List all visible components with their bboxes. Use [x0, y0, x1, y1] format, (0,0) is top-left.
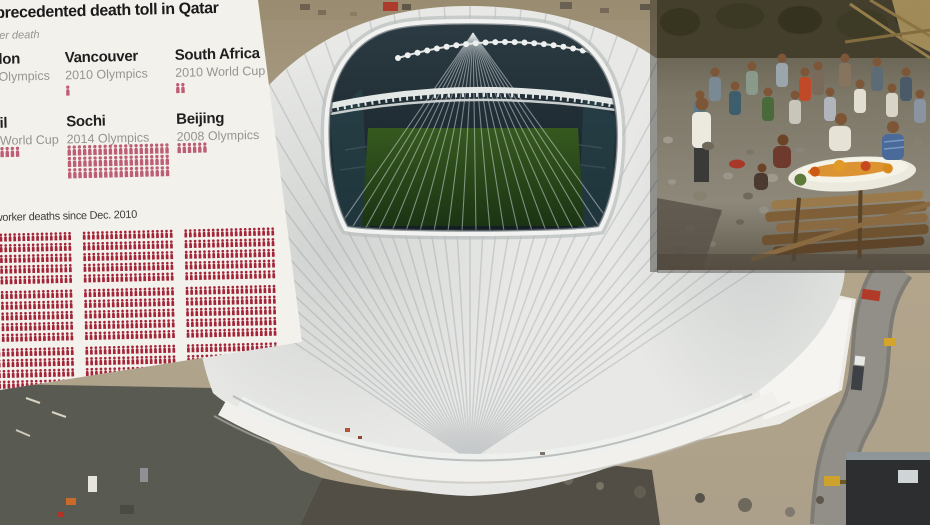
football-pitch — [362, 128, 584, 226]
stadium-bowl-opening — [330, 25, 617, 232]
funeral-photo-inset — [657, 0, 930, 270]
yellow-machine — [884, 338, 896, 346]
dark-building — [846, 452, 930, 525]
composite-image: Unprecedented death toll in Qatar = 1 wo… — [0, 0, 930, 525]
orange-digger — [66, 498, 76, 505]
red-container — [383, 2, 398, 11]
death-toll-infographic: Unprecedented death toll in Qatar = 1 wo… — [0, 0, 312, 402]
red-cloth — [729, 160, 745, 169]
white-truck — [88, 476, 97, 492]
inset-shadow — [650, 0, 658, 272]
